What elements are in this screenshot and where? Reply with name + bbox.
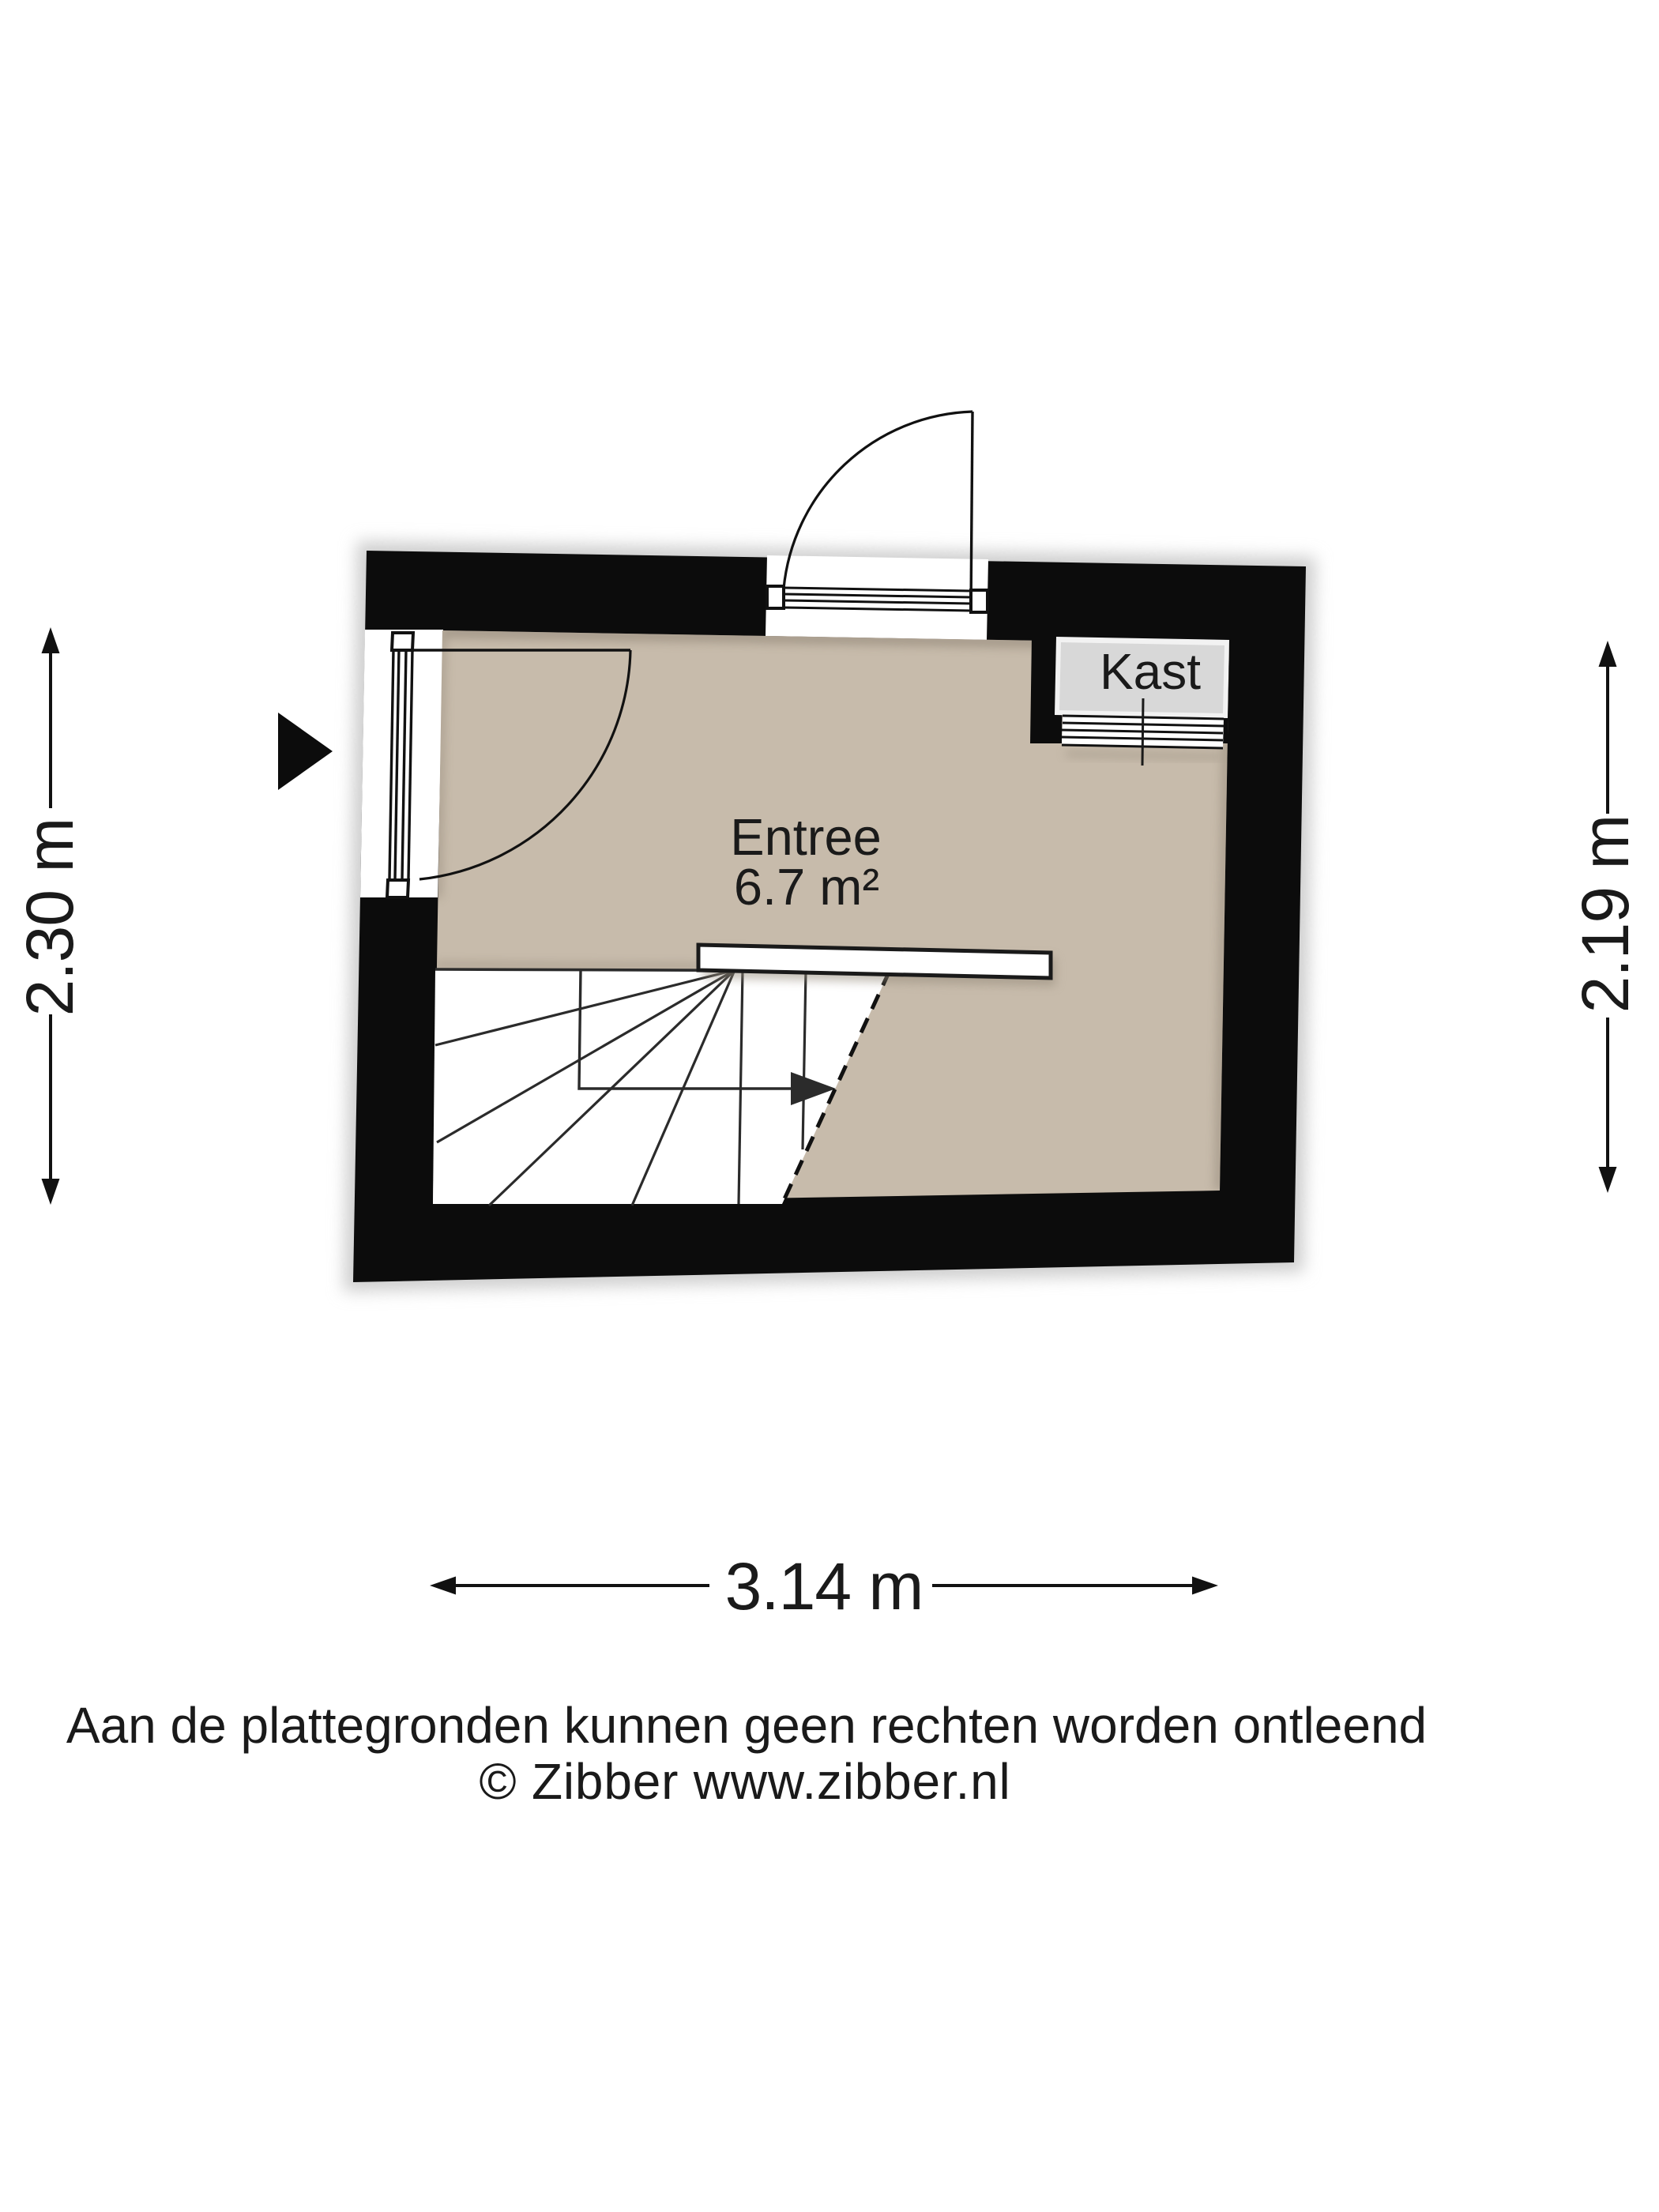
svg-text:2.19 m: 2.19 m: [1568, 815, 1642, 1014]
svg-text:6.7 m²: 6.7 m²: [734, 858, 879, 916]
svg-text:Aan de plattegronden kunnen ge: Aan de plattegronden kunnen geen rechten…: [66, 1697, 1427, 1754]
svg-text:Kast: Kast: [1100, 643, 1201, 700]
svg-text:2.30 m: 2.30 m: [13, 818, 87, 1017]
svg-text:© Zibber www.zibber.nl: © Zibber www.zibber.nl: [479, 1753, 1010, 1810]
svg-text:3.14 m: 3.14 m: [725, 1549, 924, 1623]
